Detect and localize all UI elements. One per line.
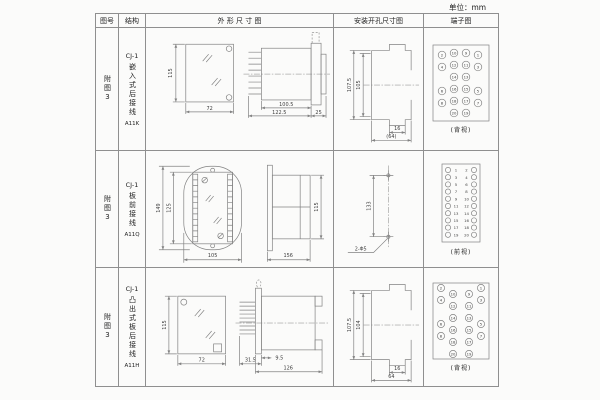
svg-text:14: 14 [464,211,469,216]
svg-text:20: 20 [464,232,469,237]
structure-cell-a11h: CJ-1 凸出式板后接线 A11H [119,268,146,386]
svg-text:5: 5 [480,322,483,327]
terminal-diagram-a11k: 2109141211314136161558181772019 [431,44,491,122]
svg-text:19: 19 [467,352,472,357]
dim-total-depth: 126 [283,365,292,371]
svg-text:8: 8 [440,334,443,339]
dim-total-depth: 156 [283,253,292,259]
svg-text:5: 5 [455,182,458,187]
svg-text:11: 11 [467,304,472,309]
svg-text:17: 17 [454,225,459,230]
figure-no-label: 附图3 [104,195,111,223]
svg-text:1: 1 [455,168,458,173]
svg-text:7: 7 [480,334,483,339]
svg-text:1: 1 [477,53,480,58]
dim-front-height: 149 [156,203,162,212]
svg-text:7: 7 [455,189,458,194]
dim-total-width: 64 [388,374,394,380]
svg-text:6: 6 [441,89,444,94]
svg-text:17: 17 [467,340,472,345]
terminal-caption: (前视) [451,247,472,256]
terminal-diagram-a11q: 1234567891011121314151617181920 [438,162,484,244]
svg-text:8: 8 [441,101,444,106]
svg-text:17: 17 [464,99,469,104]
header-outline-dims: 外 形 尺 寸 图 [146,14,334,28]
dim-inner-height: 125 [166,203,172,212]
figure-no-cell-a11h: 附图3 [96,268,119,386]
mounting-cell-a11q: 133 2-Φ5 [334,151,424,268]
svg-text:8: 8 [465,189,468,194]
structure-desc: 凸出式板后接线 [129,296,136,359]
dim-panel-depth: 25 [315,109,321,115]
svg-text:11: 11 [454,204,459,209]
dim-flange-depth: 31.5 [245,357,256,363]
dim-body-depth: 100.5 [279,101,293,107]
svg-text:12: 12 [464,204,469,209]
svg-text:4: 4 [441,65,444,70]
figure-no-label: 附图3 [104,313,111,341]
model-label: CJ-1 [126,52,139,60]
svg-text:16: 16 [464,218,469,223]
mounting-cell-a11k: 107.5 105 16 (64) [334,28,424,151]
svg-text:12: 12 [451,304,456,309]
dim-front-height: 115 [162,320,168,329]
svg-text:10: 10 [464,196,469,201]
spec-table: 图号 结构 外 形 尺 寸 图 安装开孔尺寸图 端子图 附图3 CJ-1 嵌入式… [95,13,499,387]
svg-text:13: 13 [467,316,472,321]
svg-text:10: 10 [451,292,456,297]
svg-text:5: 5 [477,89,480,94]
svg-text:9: 9 [468,292,471,297]
svg-text:16: 16 [452,87,457,92]
svg-text:18: 18 [464,225,469,230]
svg-text:11: 11 [464,63,469,68]
terminal-diagram-a11h: 2109141211314136161558181772019 [431,282,491,360]
dim-body-height: 115 [314,202,320,211]
figure-no-cell-a11k: 附图3 [96,28,119,151]
dim-slot-width: 16 [394,126,400,132]
dim-front-height: 115 [168,68,174,77]
header-figure-no: 图号 [96,14,119,28]
dim-inner-height: 104 [356,320,362,329]
svg-text:12: 12 [452,63,457,68]
svg-text:18: 18 [452,99,457,104]
svg-text:20: 20 [452,111,457,116]
svg-text:2: 2 [440,286,443,291]
header-structure: 结构 [119,14,146,28]
dim-outer-height: 107.5 [347,77,353,91]
structure-code: A11H [125,363,140,369]
svg-text:3: 3 [480,298,483,303]
outline-cell-a11q: 149 125 105 156 115 [146,151,334,268]
svg-text:9: 9 [455,196,458,201]
svg-text:3: 3 [477,65,480,70]
dim-slot-width: 16 [394,366,400,372]
svg-text:3: 3 [455,175,458,180]
svg-text:18: 18 [451,340,456,345]
hole-size-label: 2-Φ5 [355,246,367,252]
structure-cell-a11q: CJ-1 板前接线 A11Q [119,151,146,268]
outline-drawing-a11h: 115 72 31.5 9.5 126 [146,268,333,386]
dim-front-width: 72 [206,105,212,111]
header-terminal-diagram: 端子图 [424,14,498,28]
dim-front-width: 105 [208,253,217,259]
svg-text:7: 7 [477,101,480,106]
terminal-cell-a11h: 2109141211314136161558181772019 (背视) [424,268,498,386]
outline-cell-a11h: 115 72 31.5 9.5 126 [146,268,334,386]
svg-text:13: 13 [464,75,469,80]
outline-drawing-a11q: 149 125 105 156 115 [146,151,333,268]
dim-pin-depth: 9.5 [275,355,283,361]
dim-inner-height: 105 [356,80,362,89]
svg-text:15: 15 [464,87,469,92]
svg-text:6: 6 [465,182,468,187]
structure-desc: 嵌入式后接线 [129,63,136,117]
svg-text:15: 15 [454,218,459,223]
dim-hole-pitch: 133 [367,201,373,210]
terminal-cell-a11k: 2109141211314136161558181772019 (背视) [424,28,498,151]
svg-text:16: 16 [451,328,456,333]
mounting-drawing-a11h: 107.5 104 16 64 [334,268,423,386]
svg-text:20: 20 [451,352,456,357]
svg-text:6: 6 [440,322,443,327]
unit-label: 单位：mm [449,2,486,13]
dim-outer-height: 107.5 [347,318,353,332]
outline-cell-a11k: 115 72 100.5 122.5 25 [146,28,334,151]
svg-text:15: 15 [467,328,472,333]
svg-text:2: 2 [441,53,444,58]
svg-text:4: 4 [465,175,468,180]
svg-text:13: 13 [454,211,459,216]
svg-text:14: 14 [451,316,456,321]
svg-text:19: 19 [454,232,459,237]
dim-total-width: (64) [386,133,396,139]
mounting-drawing-a11k: 107.5 105 16 (64) [334,28,423,151]
terminal-caption: (背视) [451,125,472,134]
svg-text:14: 14 [452,75,457,80]
dim-front-width: 72 [199,357,205,363]
svg-text:19: 19 [464,111,469,116]
svg-text:4: 4 [440,298,443,303]
svg-text:1: 1 [480,286,483,291]
outline-drawing-a11k: 115 72 100.5 122.5 25 [146,28,333,151]
structure-code: A11K [125,121,139,127]
model-label: CJ-1 [126,181,139,189]
svg-text:2: 2 [465,168,468,173]
svg-text:9: 9 [465,51,468,56]
terminal-caption: (背视) [451,363,472,372]
header-mounting-dims: 安装开孔尺寸图 [334,14,424,28]
mounting-cell-a11h: 107.5 104 16 64 [334,268,424,386]
structure-desc: 板前接线 [129,192,136,228]
svg-text:10: 10 [452,51,457,56]
structure-code: A11Q [124,232,139,238]
terminal-cell-a11q: 1234567891011121314151617181920 (前视) [424,151,498,268]
model-label: CJ-1 [126,285,139,293]
dim-total-depth: 122.5 [272,109,286,115]
figure-no-label: 附图3 [104,75,111,103]
structure-cell-a11k: CJ-1 嵌入式后接线 A11K [119,28,146,151]
mounting-drawing-a11q: 133 2-Φ5 [334,151,423,268]
figure-no-cell-a11q: 附图3 [96,151,119,268]
